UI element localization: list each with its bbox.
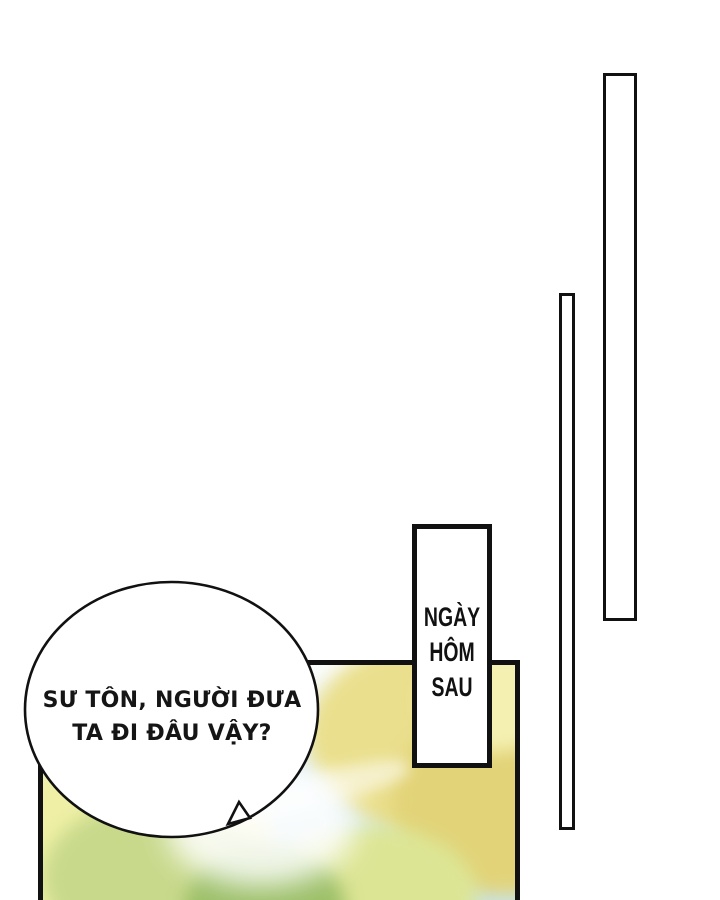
caption-line-1: NGÀY xyxy=(424,600,480,635)
caption-text: NGÀY HÔM SAU xyxy=(424,588,480,705)
speech-line-2: TA ĐI ĐÂU VẬY? xyxy=(26,717,318,750)
vertical-panel-bar-thin xyxy=(559,293,575,830)
caption-box-next-day: NGÀY HÔM SAU xyxy=(412,524,492,768)
speech-bubble-text: SƯ TÔN, NGƯỜI ĐƯA TA ĐI ĐÂU VẬY? xyxy=(26,684,318,750)
speech-line-1: SƯ TÔN, NGƯỜI ĐƯA xyxy=(26,684,318,717)
comic-page: NGÀY HÔM SAU SƯ TÔN, NGƯỜI ĐƯA TA ĐI ĐÂU… xyxy=(0,0,720,900)
vertical-panel-bar-wide xyxy=(603,73,637,621)
caption-line-2: HÔM xyxy=(424,635,480,670)
caption-line-3: SAU xyxy=(424,670,480,705)
